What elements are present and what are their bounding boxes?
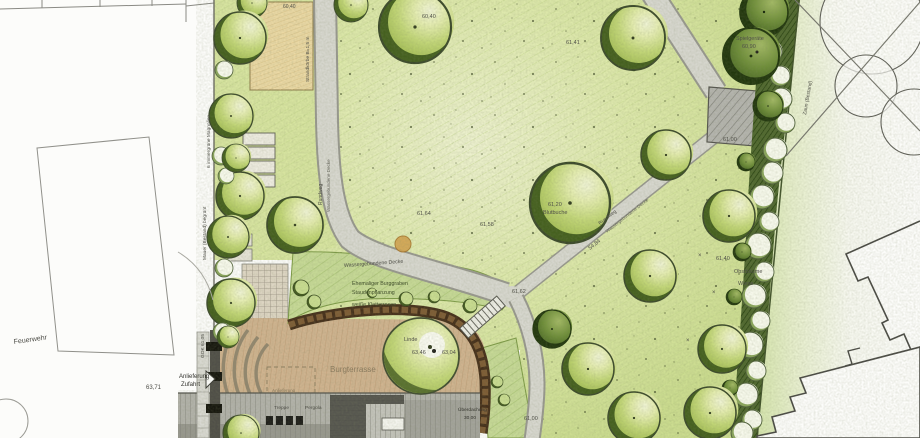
svg-text:63,71: 63,71 <box>146 385 162 391</box>
